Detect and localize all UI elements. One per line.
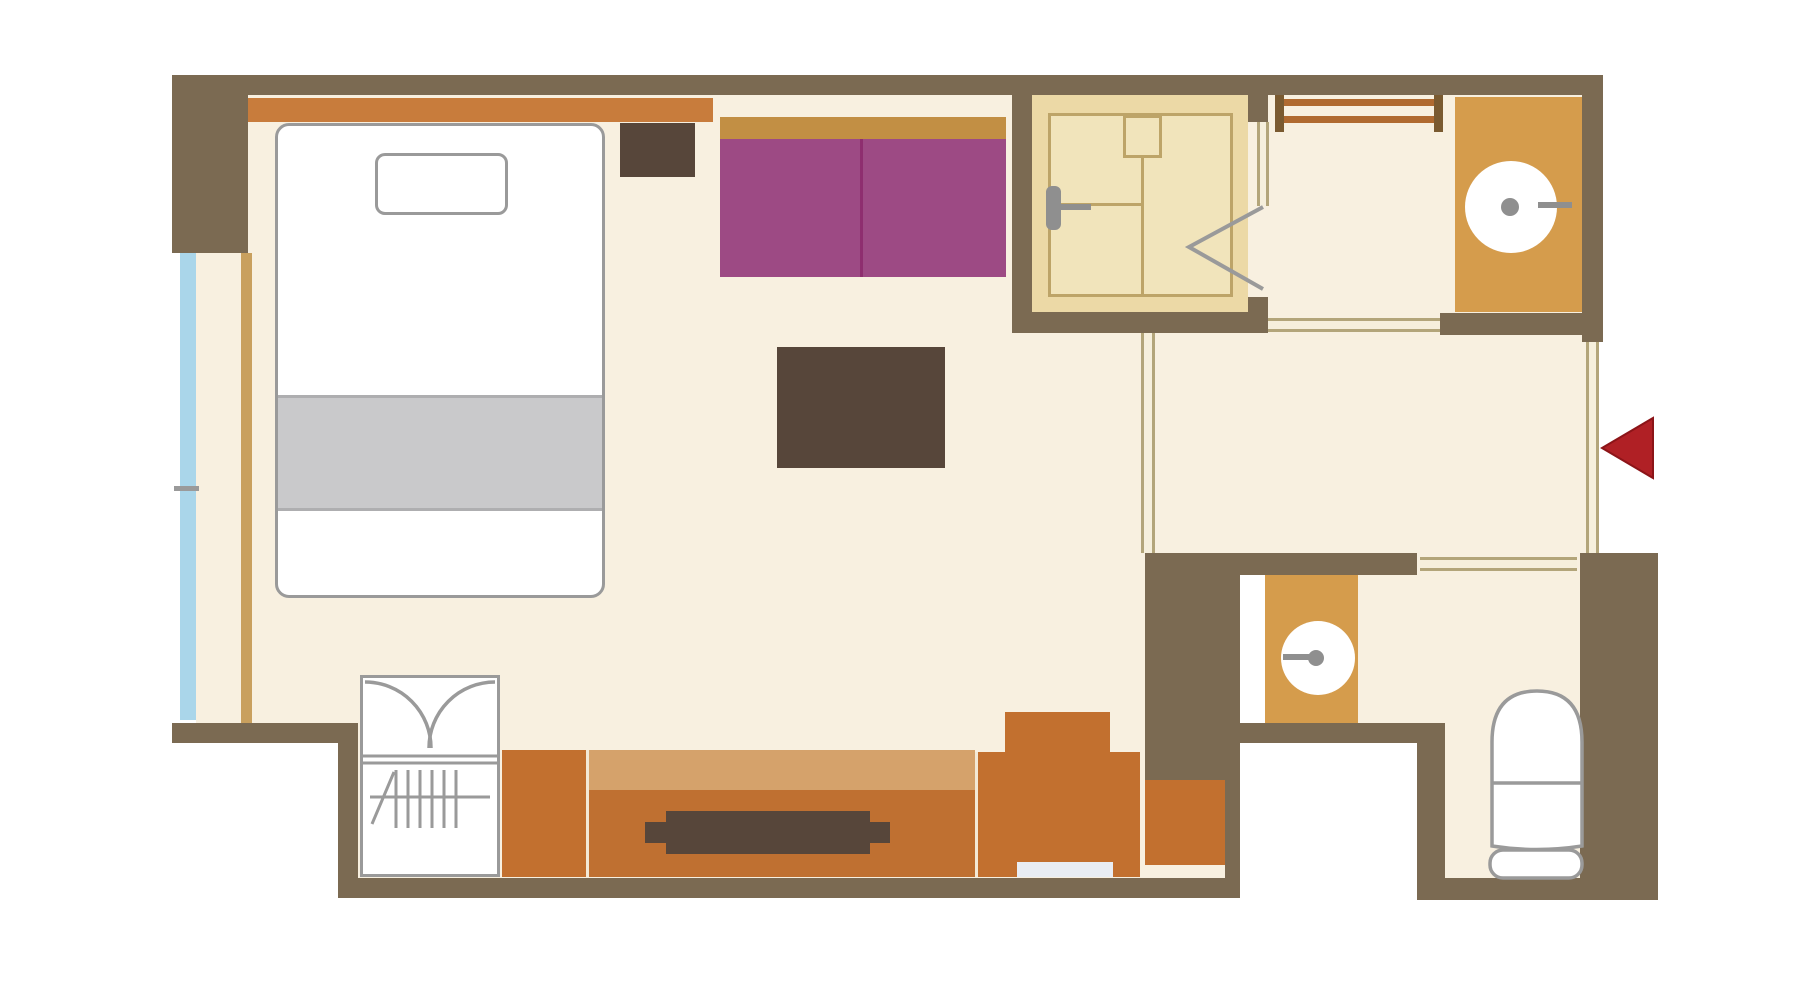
cabinet-mid xyxy=(978,752,1140,877)
wall-left-block xyxy=(172,95,248,253)
wardrobe xyxy=(360,675,500,877)
curtain-rail xyxy=(241,253,252,723)
sofa-divider xyxy=(860,139,863,277)
cabinet-lower-right xyxy=(1145,780,1225,865)
shower-control-box xyxy=(1123,115,1162,158)
tv-screen-center xyxy=(666,811,870,854)
entry-hall-floor xyxy=(1155,333,1587,553)
wall-corner-column xyxy=(1580,553,1658,900)
cabinet-step-strip xyxy=(1017,862,1113,877)
duvet xyxy=(278,395,602,511)
sink-lower-drain xyxy=(1308,650,1324,666)
sofa-backrest xyxy=(720,117,1006,139)
ldk-floor-right xyxy=(1012,333,1155,723)
cabinet-top-box xyxy=(1005,712,1110,752)
wall-shower-stub-top xyxy=(1248,95,1268,122)
window-mullion xyxy=(174,486,199,491)
wall-d xyxy=(1417,743,1445,900)
wall-shower-left xyxy=(1012,95,1032,333)
towel-rack-rail-top xyxy=(1284,99,1434,106)
wall-block-a xyxy=(1145,553,1240,780)
shower-head xyxy=(1046,186,1061,230)
opening-vanity-hall xyxy=(1268,318,1440,332)
coffee-table xyxy=(777,347,945,468)
headboard xyxy=(248,98,713,122)
wall-step-vertical xyxy=(338,723,358,898)
partition-hall-ldk xyxy=(1141,333,1155,553)
sofa-seat xyxy=(720,139,1006,277)
tv-board-top xyxy=(589,750,975,790)
entrance-arrow xyxy=(1602,418,1653,478)
toilet-room-floor-upper xyxy=(1358,573,1580,723)
sink-upper-drain xyxy=(1501,198,1519,216)
sink-upper-spout xyxy=(1538,202,1572,208)
floor-plan-canvas xyxy=(0,0,1800,1000)
sink-lower-spout xyxy=(1283,654,1309,660)
wall-top xyxy=(172,75,1603,95)
shower-head-arm xyxy=(1061,204,1091,210)
opening-hall-toilet xyxy=(1420,557,1577,571)
wall-bedroom-bottom xyxy=(172,723,358,743)
duvet-top-edge xyxy=(278,395,602,398)
wall-dresser-right-strip xyxy=(1225,780,1240,878)
towel-rack-rail-bottom xyxy=(1284,116,1434,123)
entrance-door-line xyxy=(1586,342,1599,553)
duvet-bottom-edge xyxy=(278,508,602,511)
wall-vanity-bottom xyxy=(1440,313,1603,335)
nightstand xyxy=(620,123,695,177)
wall-bottom-long xyxy=(338,878,1240,898)
toilet-room-floor-lower xyxy=(1445,723,1580,878)
shower-door-frame xyxy=(1257,122,1269,206)
wall-right-upper xyxy=(1582,95,1603,342)
wall-c xyxy=(1240,723,1445,743)
wall-shower-bottom xyxy=(1012,312,1268,333)
cabinet-left xyxy=(502,750,586,877)
pillow xyxy=(375,153,508,215)
shower-divider-vline xyxy=(1141,158,1144,297)
